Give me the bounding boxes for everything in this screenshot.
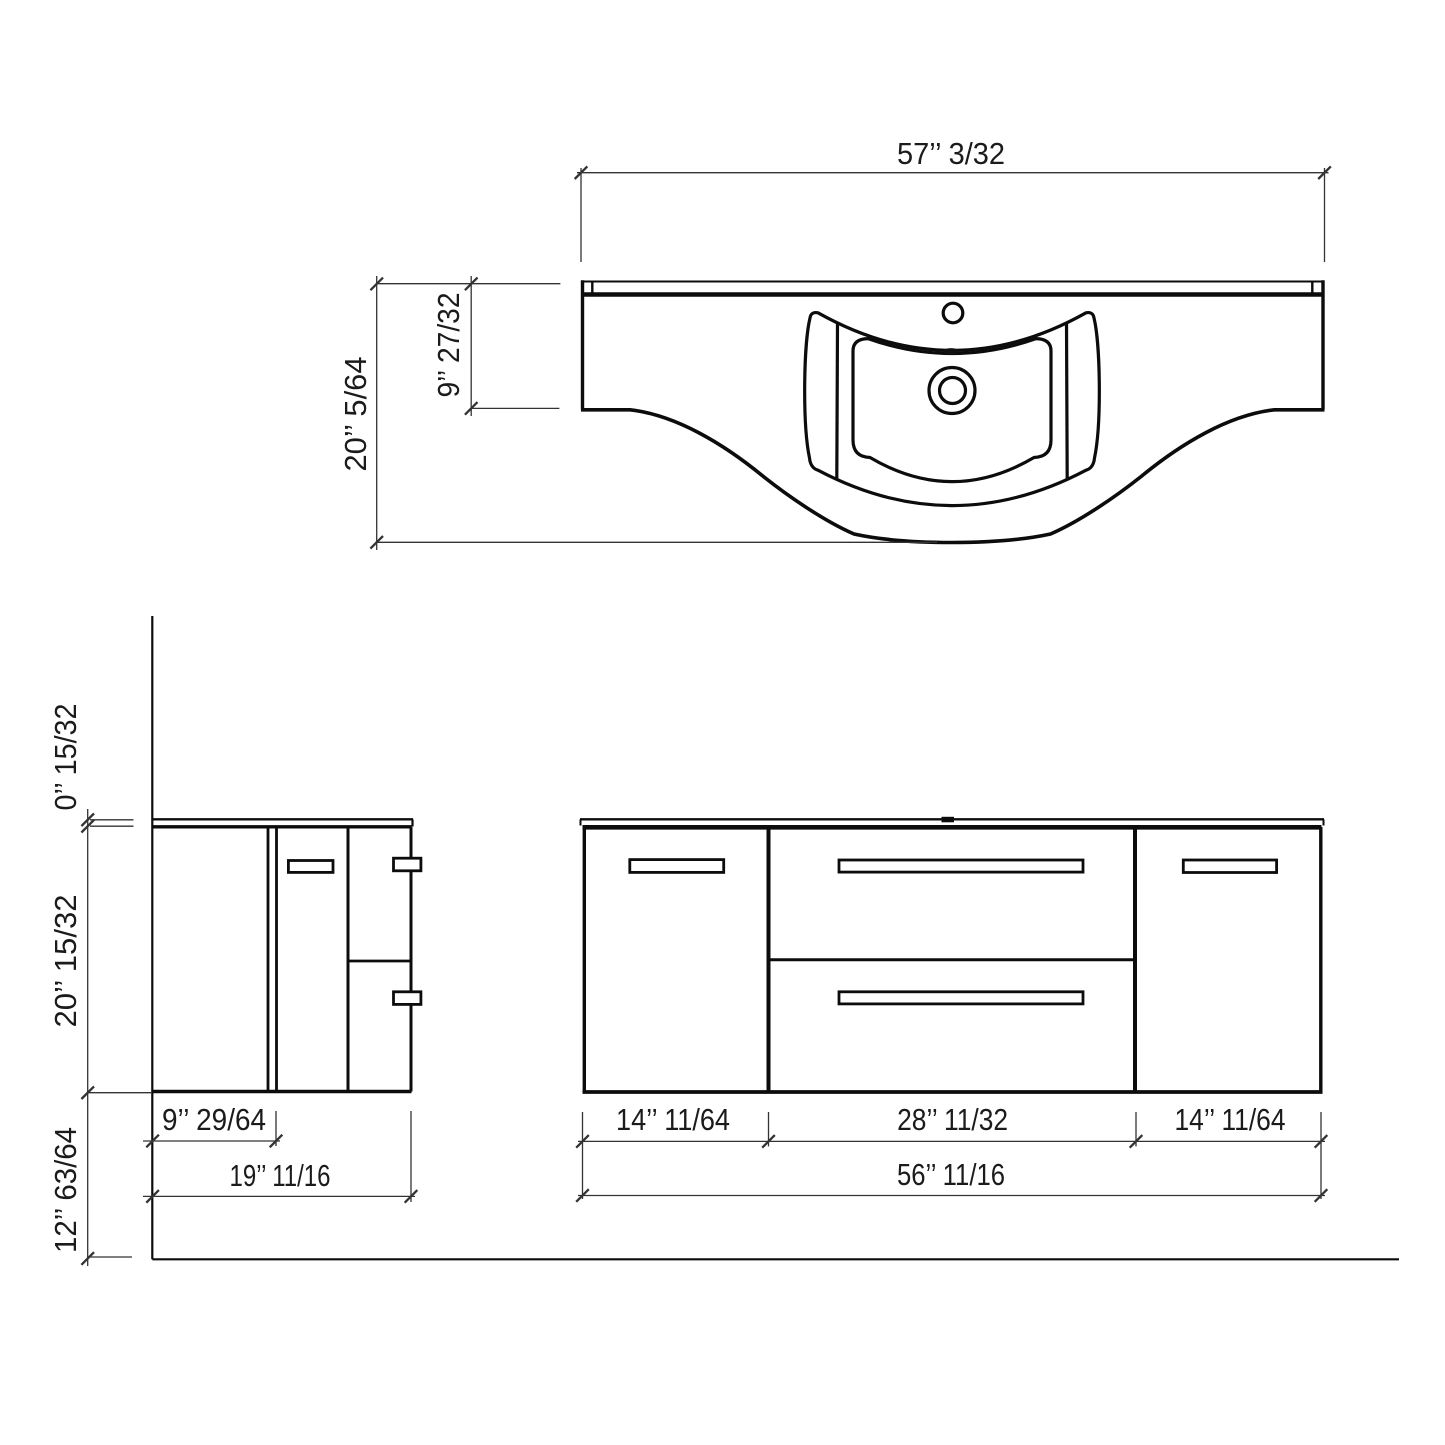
svg-text:9’’ 27/32: 9’’ 27/32 [431,293,466,398]
svg-text:56’’ 11/16: 56’’ 11/16 [897,1157,1005,1192]
svg-text:20’’ 5/64: 20’’ 5/64 [338,357,373,472]
svg-text:0’’ 15/32: 0’’ 15/32 [48,704,83,811]
svg-text:19’’ 11/16: 19’’ 11/16 [230,1158,331,1193]
svg-text:9’’ 29/64: 9’’ 29/64 [162,1102,266,1137]
svg-text:14’’ 11/64: 14’’ 11/64 [1175,1102,1286,1137]
svg-text:12’’ 63/64: 12’’ 63/64 [48,1127,83,1253]
svg-text:14’’ 11/64: 14’’ 11/64 [616,1102,730,1137]
svg-text:57’’ 3/32: 57’’ 3/32 [897,136,1005,171]
svg-text:20’’ 15/32: 20’’ 15/32 [48,895,83,1028]
svg-text:28’’ 11/32: 28’’ 11/32 [897,1102,1008,1137]
